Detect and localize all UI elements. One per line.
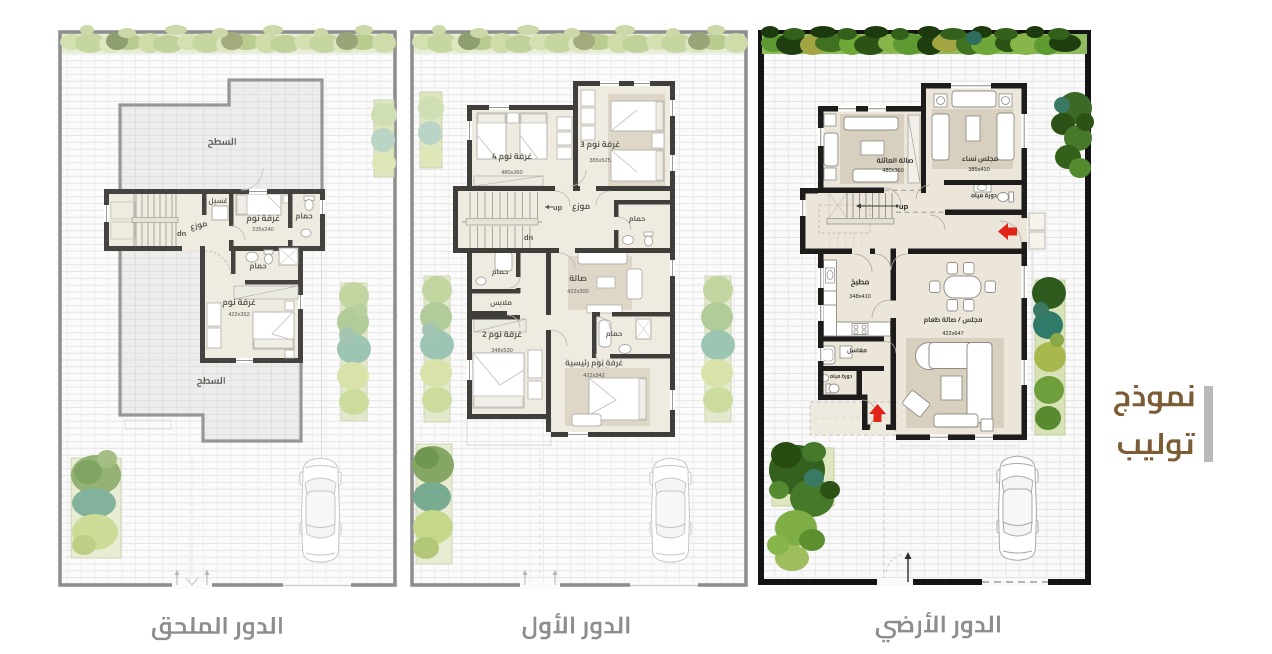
svg-text:up: up	[553, 203, 563, 212]
svg-text:422x647: 422x647	[942, 331, 963, 337]
svg-text:422x342: 422x342	[583, 373, 604, 379]
svg-text:480x360: 480x360	[501, 170, 522, 176]
svg-text:422x352: 422x352	[228, 312, 249, 318]
svg-text:348x530: 348x530	[491, 348, 512, 354]
svg-text:480x360: 480x360	[882, 168, 903, 174]
svg-text:up: up	[899, 202, 909, 211]
svg-text:dn: dn	[524, 233, 534, 242]
svg-text:dn: dn	[177, 229, 187, 238]
svg-text:385x410: 385x410	[968, 167, 989, 173]
svg-text:422x300: 422x300	[567, 289, 588, 295]
svg-text:235x240: 235x240	[252, 227, 273, 233]
svg-text:385x525: 385x525	[589, 158, 610, 164]
svg-text:348x410: 348x410	[849, 294, 870, 300]
